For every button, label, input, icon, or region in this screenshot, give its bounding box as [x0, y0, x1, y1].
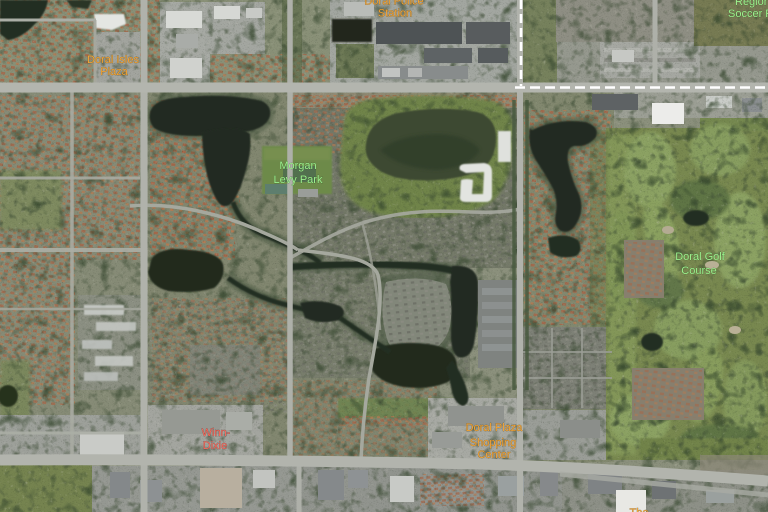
svg-text:Doral Golf: Doral Golf — [675, 251, 725, 263]
svg-text:Levy Park: Levy Park — [274, 174, 323, 186]
svg-text:Course: Course — [681, 265, 716, 277]
svg-text:Doral Isles: Doral Isles — [87, 54, 139, 66]
svg-text:Center: Center — [477, 449, 510, 461]
svg-text:Plaza: Plaza — [100, 66, 128, 78]
svg-text:Doral Police: Doral Police — [364, 0, 423, 8]
svg-text:Winn-: Winn- — [202, 427, 231, 439]
svg-text:Shopping: Shopping — [470, 437, 517, 449]
svg-text:Regional: Regional — [735, 0, 768, 8]
svg-text:Dixie: Dixie — [203, 440, 227, 452]
svg-text:The: The — [630, 507, 649, 512]
svg-text:Station: Station — [378, 8, 412, 20]
svg-text:Soccer Pa: Soccer Pa — [728, 8, 768, 20]
svg-text:Doral Plaza: Doral Plaza — [466, 422, 524, 434]
svg-text:Morgan: Morgan — [279, 160, 316, 172]
